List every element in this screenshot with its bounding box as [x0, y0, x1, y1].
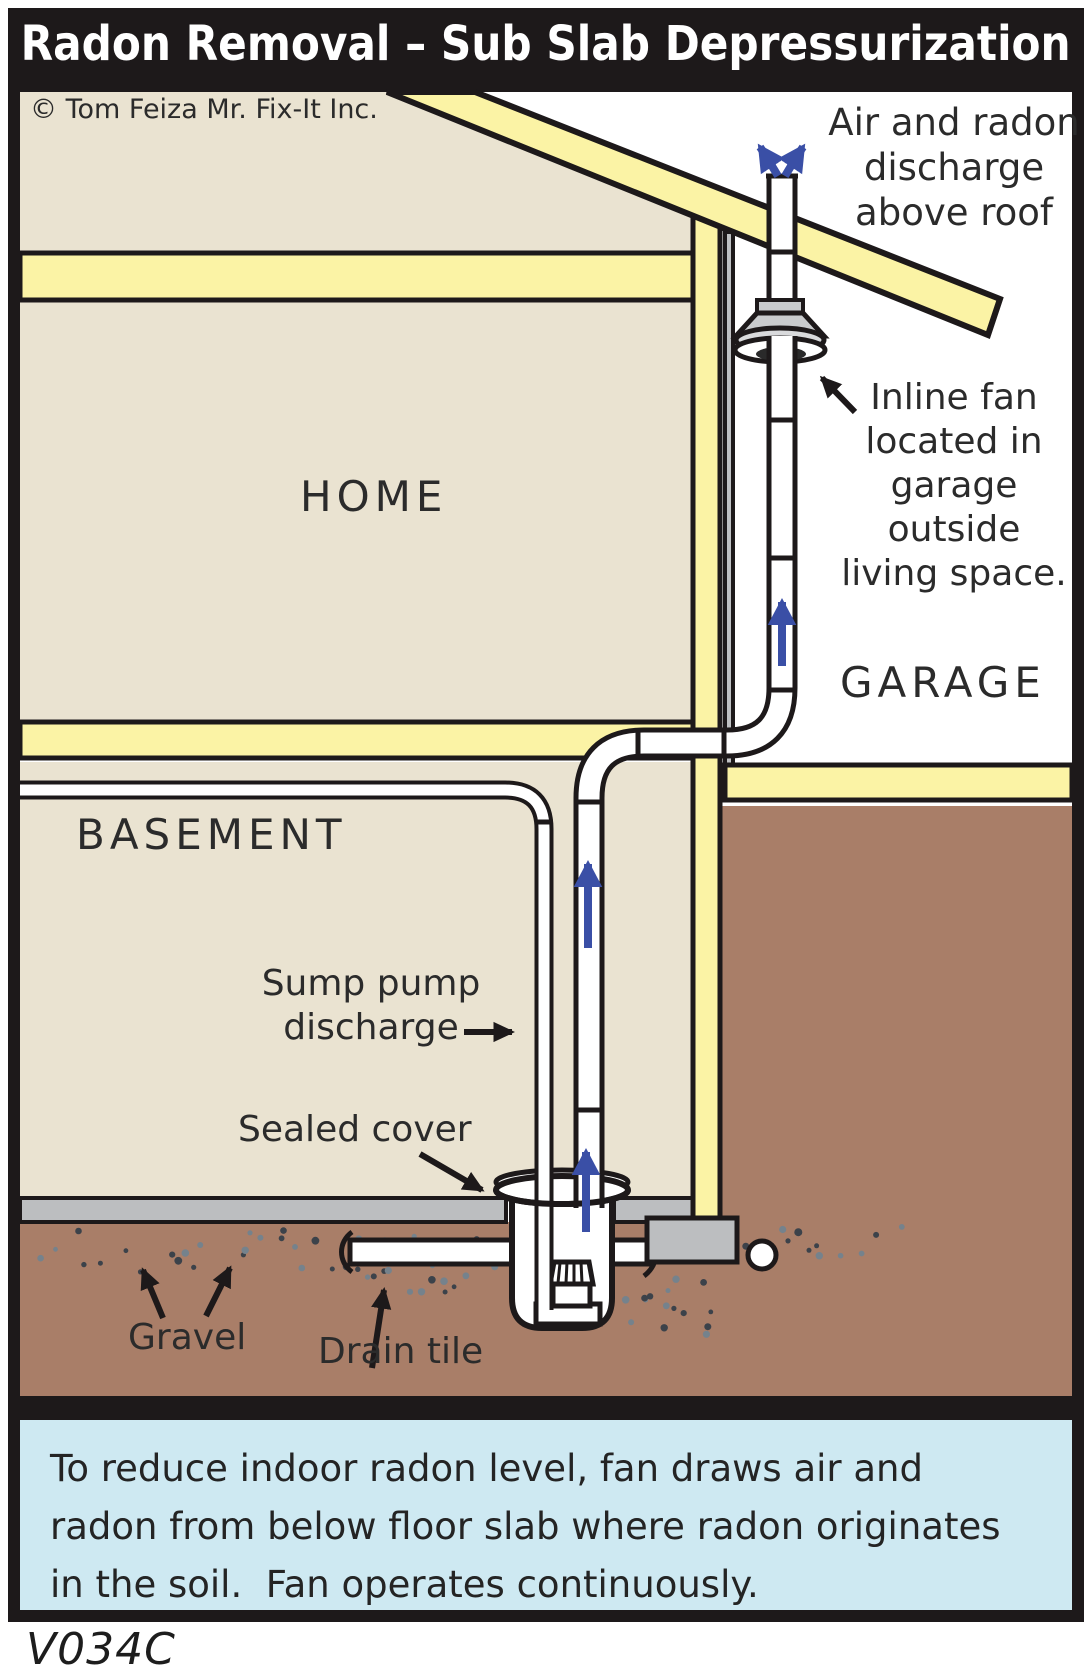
caption-line-2: radon from below floor slab where radon … — [50, 1498, 1072, 1556]
inline-fan-line: Inline fan — [826, 376, 1082, 420]
caption-line-3: in the soil. Fan operates continuously. — [50, 1556, 1072, 1614]
inline-fan-label: Inline fan located in garage outside liv… — [826, 376, 1082, 596]
diagram-code: V034C — [26, 1624, 176, 1675]
sump-discharge-line: discharge — [258, 1006, 484, 1050]
caption-box: To reduce indoor radon level, fan draws … — [8, 1408, 1084, 1622]
air-discharge-line: above roof — [826, 190, 1082, 235]
inline-fan-line: living space. — [826, 552, 1082, 596]
radon-diagram-page: Radon Removal – Sub Slab Depressurizatio… — [0, 0, 1092, 1675]
gravel-label: Gravel — [128, 1316, 246, 1360]
diagram-panel — [8, 80, 1084, 1408]
diagram-title: Radon Removal – Sub Slab Depressurizatio… — [21, 16, 1071, 72]
sealed-cover-label: Sealed cover — [238, 1108, 472, 1152]
title-bar: Radon Removal – Sub Slab Depressurizatio… — [8, 8, 1084, 80]
air-discharge-line: Air and radon — [826, 100, 1082, 145]
home-label: HOME — [300, 472, 447, 521]
air-discharge-label: Air and radon discharge above roof — [826, 100, 1082, 235]
sump-discharge-line: Sump pump — [258, 962, 484, 1006]
drain-tile-label: Drain tile — [318, 1330, 483, 1374]
air-discharge-line: discharge — [826, 145, 1082, 190]
inline-fan-line: garage outside — [826, 464, 1082, 552]
inline-fan-line: located in — [826, 420, 1082, 464]
garage-label: GARAGE — [840, 658, 1046, 707]
basement-label: BASEMENT — [76, 810, 347, 859]
copyright-note: © Tom Feiza Mr. Fix-It Inc. — [30, 94, 378, 125]
sump-discharge-label: Sump pump discharge — [258, 962, 484, 1050]
caption-line-1: To reduce indoor radon level, fan draws … — [50, 1440, 1072, 1498]
